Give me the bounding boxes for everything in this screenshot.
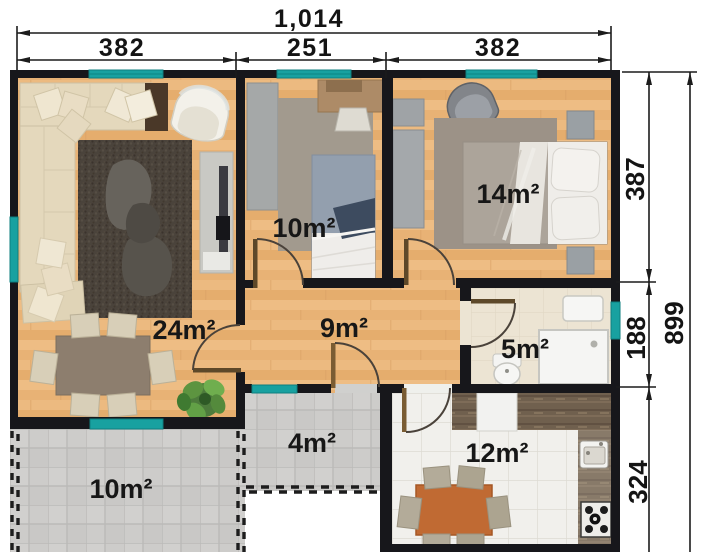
svg-text:10m²: 10m² xyxy=(89,474,152,504)
svg-text:387: 387 xyxy=(620,157,650,200)
svg-text:188: 188 xyxy=(621,316,651,359)
svg-text:24m²: 24m² xyxy=(152,315,215,345)
svg-text:1,014: 1,014 xyxy=(274,5,344,33)
svg-text:4m²: 4m² xyxy=(288,428,336,458)
svg-text:10m²: 10m² xyxy=(272,213,335,243)
svg-text:251: 251 xyxy=(287,34,333,62)
svg-text:382: 382 xyxy=(475,34,521,62)
svg-text:899: 899 xyxy=(659,301,689,344)
svg-text:324: 324 xyxy=(623,460,653,504)
svg-text:9m²: 9m² xyxy=(320,313,368,343)
svg-text:14m²: 14m² xyxy=(476,179,539,209)
svg-text:382: 382 xyxy=(99,34,145,62)
svg-text:5m²: 5m² xyxy=(501,334,549,364)
svg-text:12m²: 12m² xyxy=(465,438,528,468)
